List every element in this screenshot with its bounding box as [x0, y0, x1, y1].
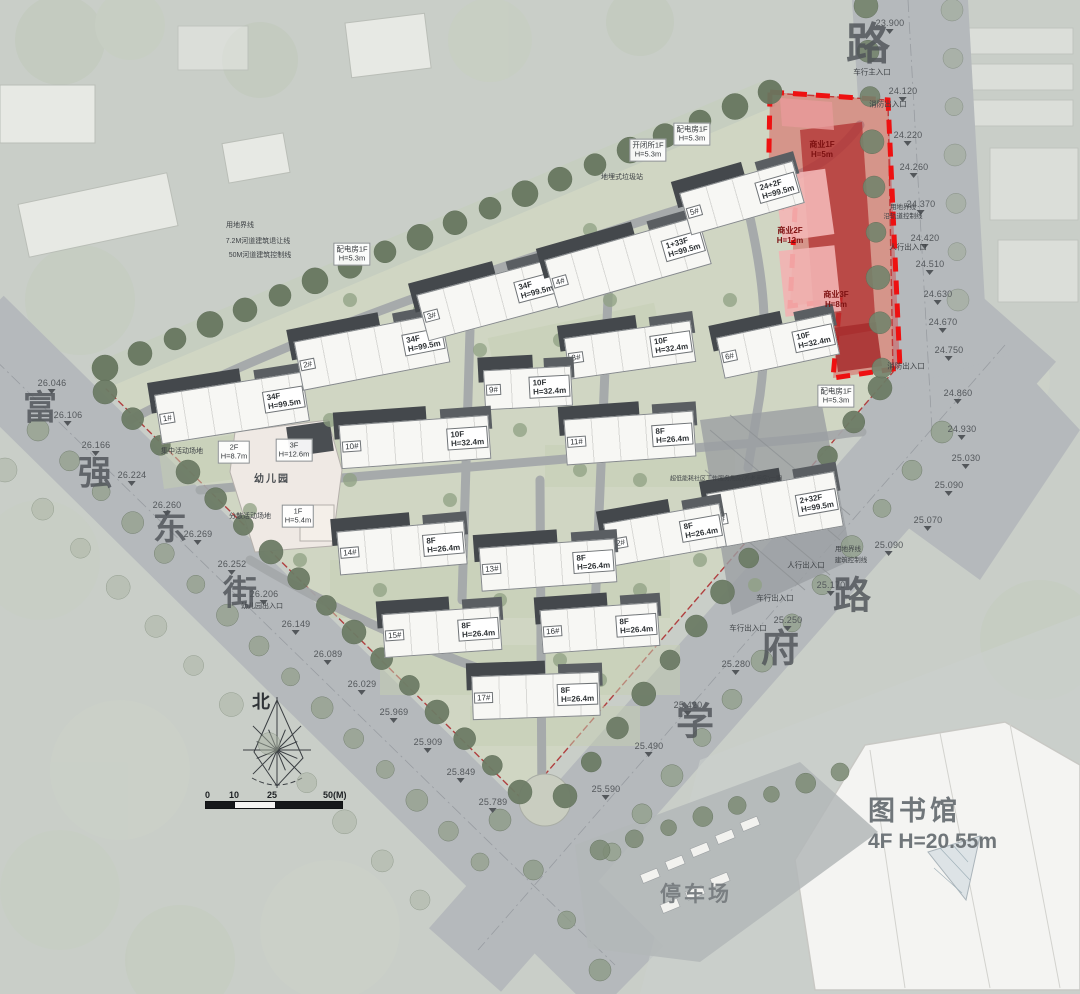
elevation-value: 24.630 — [924, 289, 953, 299]
elevation-value: 24.260 — [900, 162, 929, 172]
scale-tick-25: 25 — [267, 790, 277, 800]
building-id-label: 9# — [486, 384, 501, 396]
elevation-value: 25.789 — [479, 797, 508, 807]
north-label: 北 — [252, 688, 270, 714]
scale-tick-50: 50(M) — [323, 790, 347, 800]
building-spec-label: 8F H=26.4m — [457, 617, 500, 642]
elevation-triangle-icon — [194, 540, 202, 545]
elevation-triangle-icon — [945, 356, 953, 361]
elevation-marker: 24.260 — [900, 162, 929, 178]
scale-bar: 0 10 25 50(M) — [205, 790, 355, 812]
elevation-marker: 26.029 — [348, 679, 377, 695]
building-spec-label: 8F H=26.4m — [556, 683, 598, 707]
elevation-marker: 24.220 — [894, 130, 923, 146]
elevation-value: 26.269 — [184, 529, 213, 539]
elevation-marker: 25.590 — [592, 784, 621, 800]
elevation-marker: 25.280 — [722, 659, 751, 675]
building-id-label: 15# — [385, 629, 405, 641]
elevation-triangle-icon — [292, 630, 300, 635]
elevation-triangle-icon — [390, 718, 398, 723]
elevation-triangle-icon — [128, 481, 136, 486]
building-4: 4#1+33F H=99.5m — [544, 216, 712, 308]
elevation-marker: 26.149 — [282, 619, 311, 635]
annotation-label: 地埋式垃圾站 — [601, 172, 643, 182]
elevation-value: 24.860 — [944, 388, 973, 398]
elevation-triangle-icon — [945, 491, 953, 496]
elevation-triangle-icon — [924, 526, 932, 531]
library-label: 图书馆 4F H=20.55m — [868, 795, 997, 855]
building-10: 10#10F H=32.4m — [339, 415, 492, 469]
building-12: 12#8F H=26.4m — [603, 503, 727, 567]
elevation-value: 26.106 — [54, 410, 83, 420]
annotation-label: 幼儿园出入口 — [241, 601, 283, 611]
building-1: 1#34F H=99.5m — [154, 372, 310, 445]
road-name-char: 路 — [833, 565, 871, 620]
building-8: 8#10F H=32.4m — [564, 320, 697, 379]
library-name: 图书馆 — [868, 795, 997, 829]
elevation-marker: 25.909 — [414, 737, 443, 753]
elevation-triangle-icon — [885, 551, 893, 556]
facility-label: 配电房1F H=5.3m — [673, 123, 710, 146]
elevation-value: 26.149 — [282, 619, 311, 629]
library-spec: 4F H=20.55m — [868, 829, 997, 855]
elevation-value: 25.030 — [952, 453, 981, 463]
scale-bar-ticks: 0 10 25 50(M) — [205, 790, 355, 801]
annotation-label: 超低能耗社区工作服务用房(养老用房)一期 — [670, 474, 782, 483]
elevation-value: 25.090 — [935, 480, 964, 490]
elevation-marker: 24.860 — [944, 388, 973, 404]
elevation-value: 26.224 — [118, 470, 147, 480]
road-name-char: 东 — [153, 501, 187, 550]
elevation-value: 25.490 — [635, 741, 664, 751]
building-14: 14#8F H=26.4m — [336, 521, 467, 576]
building-15: 15#8F H=26.4m — [382, 606, 503, 658]
building-6: 6#10F H=32.4m — [716, 313, 840, 379]
building-id-label: 14# — [340, 546, 360, 559]
building-id-label: 1# — [159, 412, 175, 425]
elevation-value: 24.220 — [894, 130, 923, 140]
parking-label: 停车场 — [660, 878, 732, 908]
road-name-char: 富 — [23, 381, 57, 430]
facility-label: 3F H=12.6m — [276, 439, 313, 462]
annotation-label: 人行出入口 — [787, 560, 825, 571]
annotation-label: 车行主入口 — [853, 67, 891, 78]
facility-label: 1F H=5.4m — [282, 505, 314, 528]
elevation-value: 25.909 — [414, 737, 443, 747]
elevation-triangle-icon — [904, 141, 912, 146]
elevation-marker: 25.090 — [875, 540, 904, 556]
building-spec-label: 8F H=26.4m — [422, 531, 465, 557]
elevation-value: 26.089 — [314, 649, 343, 659]
elevation-value: 26.029 — [348, 679, 377, 689]
building-id-label: 13# — [482, 563, 502, 575]
elevation-triangle-icon — [926, 270, 934, 275]
annotation-label: 消防出入口 — [869, 99, 907, 110]
annotation-label: 建筑控制线 — [835, 554, 868, 564]
annotation-label: 用地界线 — [835, 543, 861, 553]
facility-label: 开闭所1F H=5.3m — [629, 139, 666, 162]
scale-bar-graphic — [205, 801, 343, 809]
building-id-label: 11# — [567, 436, 586, 448]
elevation-value: 25.070 — [914, 515, 943, 525]
elevation-value: 24.670 — [929, 317, 958, 327]
elevation-marker: 26.269 — [184, 529, 213, 545]
facility-label: 配电房1F H=5.3m — [817, 385, 854, 408]
elevation-triangle-icon — [358, 690, 366, 695]
building-spec-label: 10F H=32.4m — [528, 375, 570, 399]
elevation-triangle-icon — [324, 660, 332, 665]
elevation-triangle-icon — [934, 300, 942, 305]
label-overlay: 图书馆 4F H=20.55m 停车场 北 0 10 25 50(M) 1#34… — [0, 0, 1080, 994]
annotation-label: 车行出入口 — [729, 623, 767, 634]
elevation-marker: 25.969 — [380, 707, 409, 723]
elevation-marker: 24.510 — [916, 259, 945, 275]
road-name-char: 路 — [846, 8, 890, 72]
elevation-marker: 26.224 — [118, 470, 147, 486]
road-name-char: 强 — [78, 446, 112, 495]
elevation-triangle-icon — [962, 464, 970, 469]
elevation-triangle-icon — [645, 752, 653, 757]
elevation-value: 24.930 — [948, 424, 977, 434]
building-spec-label: 10F H=32.4m — [446, 426, 489, 451]
elevation-marker: 25.070 — [914, 515, 943, 531]
building-spec-label: 8F H=26.4m — [615, 613, 658, 638]
annotation-label: 人行出入口 — [889, 242, 927, 253]
annotation-label: 7.2M河道建筑退让线 — [226, 236, 291, 246]
elevation-value: 24.510 — [916, 259, 945, 269]
building-5: 5#24+2F H=99.5m — [679, 161, 805, 236]
elevation-triangle-icon — [939, 328, 947, 333]
facility-label: 2F H=8.7m — [218, 441, 250, 464]
elevation-triangle-icon — [954, 399, 962, 404]
annotation-label: 分散活动场地 — [229, 511, 271, 521]
building-9: 9#10F H=32.4m — [483, 366, 573, 411]
building-11: 11#8F H=26.4m — [564, 411, 697, 466]
elevation-triangle-icon — [910, 173, 918, 178]
facility-label: 幼儿园 — [252, 473, 292, 488]
building-spec-label: 8F H=26.4m — [572, 549, 615, 574]
annotation-label: 消防出入口 — [887, 361, 925, 372]
commercial-label: 商业3F H=8m — [823, 290, 848, 310]
elevation-value: 24.120 — [889, 86, 918, 96]
annotation-label: 50M河道建筑控制线 — [229, 250, 292, 260]
building-id-label: 10# — [342, 440, 362, 452]
elevation-value: 25.969 — [380, 707, 409, 717]
elevation-value: 25.280 — [722, 659, 751, 669]
annotation-label: 用地界线 — [226, 220, 254, 230]
annotation-label: 沿轨道控制线 — [884, 210, 923, 220]
building-16: 16#8F H=26.4m — [540, 602, 661, 654]
elevation-value: 24.750 — [935, 345, 964, 355]
elevation-value: 25.590 — [592, 784, 621, 794]
elevation-marker: 25.090 — [935, 480, 964, 496]
scale-tick-10: 10 — [229, 790, 239, 800]
elevation-value: 25.849 — [447, 767, 476, 777]
building-id-label: 17# — [474, 692, 494, 704]
elevation-marker: 25.849 — [447, 767, 476, 783]
building-id-label: 16# — [543, 625, 563, 637]
scale-tick-0: 0 — [205, 790, 210, 800]
elevation-marker: 24.930 — [948, 424, 977, 440]
elevation-marker: 25.789 — [479, 797, 508, 813]
elevation-marker: 26.089 — [314, 649, 343, 665]
elevation-triangle-icon — [64, 421, 72, 426]
elevation-marker: 25.490 — [635, 741, 664, 757]
elevation-triangle-icon — [489, 808, 497, 813]
building-7: 7#2+32F H=99.5m — [706, 471, 844, 549]
elevation-triangle-icon — [457, 778, 465, 783]
elevation-triangle-icon — [732, 670, 740, 675]
elevation-triangle-icon — [958, 435, 966, 440]
building-13: 13#8F H=26.4m — [479, 538, 618, 591]
building-17: 17#8F H=26.4m — [471, 672, 600, 720]
elevation-marker: 24.630 — [924, 289, 953, 305]
road-name-char: 学 — [676, 691, 714, 746]
elevation-triangle-icon — [602, 795, 610, 800]
facility-label: 配电房1F H=5.3m — [333, 243, 370, 266]
commercial-label: 商业2F H=12m — [777, 226, 803, 246]
elevation-value: 25.090 — [875, 540, 904, 550]
site-plan: 图书馆 4F H=20.55m 停车场 北 0 10 25 50(M) 1#34… — [0, 0, 1080, 994]
annotation-label: 集中活动场地 — [161, 446, 203, 456]
building-spec-label: 8F H=26.4m — [651, 422, 694, 447]
elevation-marker: 26.106 — [54, 410, 83, 426]
commercial-label: 商业1F H=5m — [809, 140, 834, 160]
elevation-triangle-icon — [424, 748, 432, 753]
elevation-marker: 24.670 — [929, 317, 958, 333]
elevation-marker: 24.750 — [935, 345, 964, 361]
elevation-marker: 25.030 — [952, 453, 981, 469]
annotation-label: 车行出入口 — [756, 593, 794, 604]
